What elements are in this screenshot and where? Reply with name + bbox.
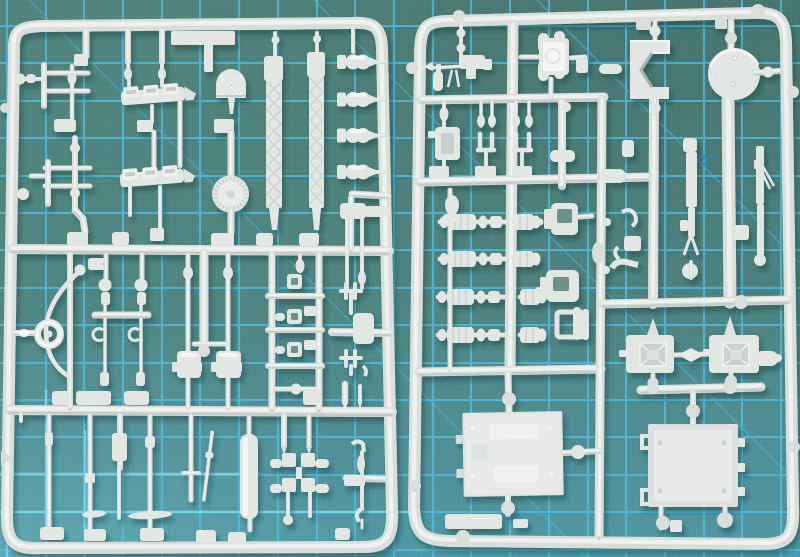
svg-text:5°: 5° (700, 152, 715, 169)
